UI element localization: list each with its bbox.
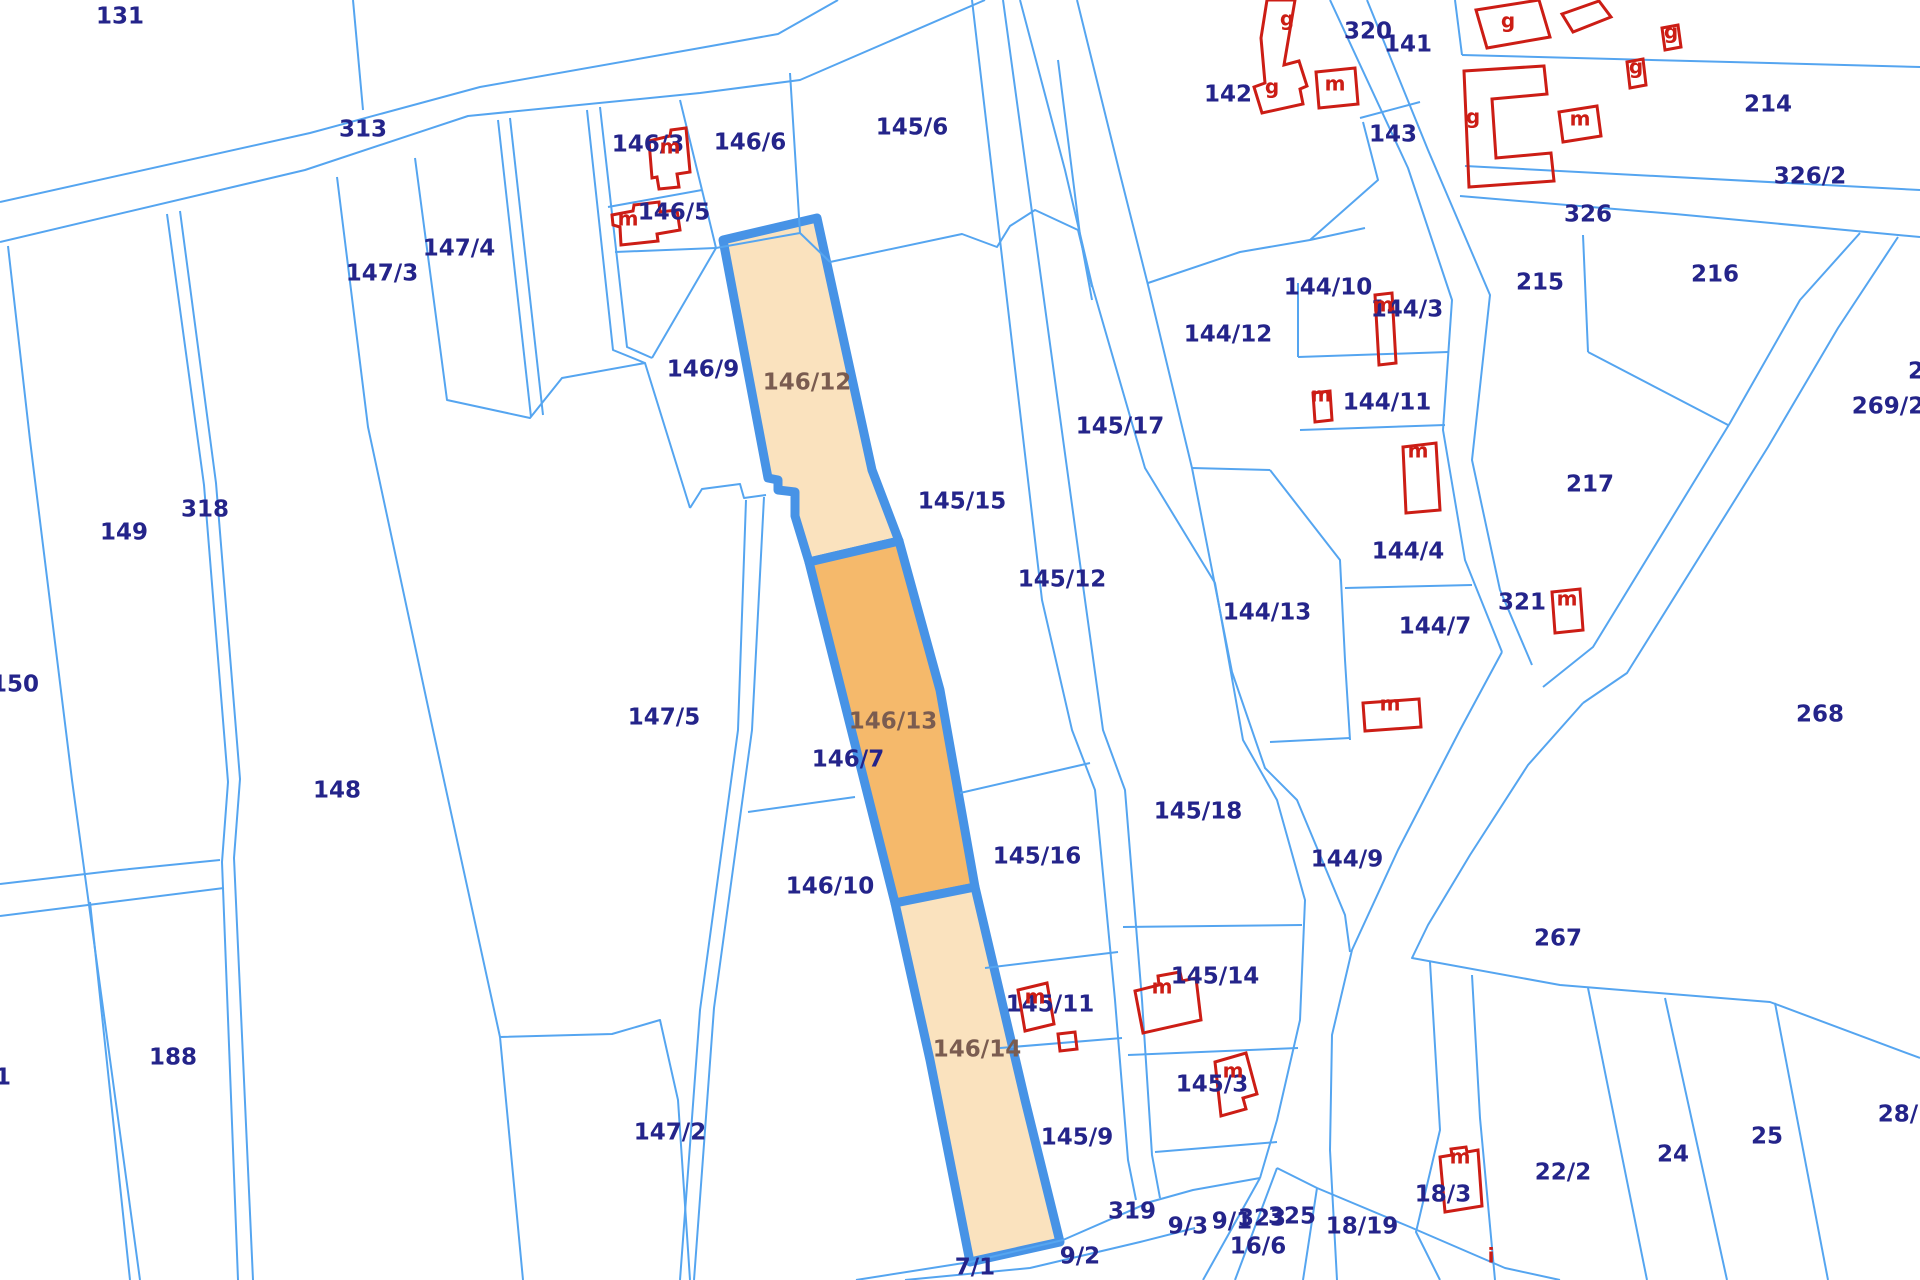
parcel-label-142: 142 [1204, 82, 1252, 108]
parcel-boundary-line [180, 211, 253, 1280]
parcel-boundary-line [0, 888, 224, 916]
parcel-label-144/7: 144/7 [1399, 614, 1471, 640]
parcel-boundary-line [694, 497, 764, 1280]
parcel-boundary-line [1303, 1188, 1317, 1280]
parcel-label-146/13: 146/13 [849, 709, 937, 735]
parcel-label-146/6: 146/6 [714, 130, 786, 156]
building-letter-g: g [1629, 55, 1643, 79]
parcel-label-131: 131 [96, 4, 144, 30]
building-letter-m: m [1311, 383, 1332, 407]
parcel-label-144/4: 144/4 [1372, 539, 1444, 565]
parcel-label-28/1: 28/1 [1878, 1102, 1920, 1128]
parcel-boundary-line [1462, 55, 1920, 67]
parcel-boundary-line [353, 0, 363, 110]
building-letter-m: m [1570, 107, 1591, 131]
parcel-label-146/10: 146/10 [786, 874, 874, 900]
building-letter-g: g [1466, 105, 1480, 129]
parcel-label-143: 143 [1369, 122, 1417, 148]
parcel-label-145/6: 145/6 [876, 115, 948, 141]
parcel-boundary-line [1310, 122, 1378, 240]
parcel-boundary-line [830, 210, 1092, 287]
parcel-boundary-line [1588, 352, 1728, 425]
highlighted-parcel-146/14[interactable] [895, 887, 1060, 1262]
parcel-label-144/10: 144/10 [1284, 275, 1372, 301]
parcel-label-18/19: 18/19 [1326, 1214, 1398, 1240]
parcel-label-217: 217 [1566, 472, 1614, 498]
building-letter-m: m [1408, 439, 1429, 463]
parcel-boundary-line [1123, 925, 1302, 927]
building-letter-g: g [1265, 75, 1279, 99]
parcel-boundary-line [690, 484, 766, 508]
parcel-label-145/12: 145/12 [1018, 567, 1106, 593]
parcel-label-146/9: 146/9 [667, 357, 739, 383]
parcel-label-216: 216 [1691, 262, 1739, 288]
building-letter-m: m [1373, 293, 1394, 317]
parcel-label-269/2: 269/2 [1852, 394, 1920, 420]
parcel-boundary-line [1583, 235, 1588, 352]
parcel-label-145/18: 145/18 [1154, 799, 1242, 825]
parcel-label-214: 214 [1744, 92, 1792, 118]
building-letter-m: m [660, 135, 681, 159]
parcel-boundary-line [8, 246, 140, 1280]
parcel-label-318: 318 [181, 497, 229, 523]
parcel-boundary-line [1588, 988, 1647, 1280]
parcel-label-16/6: 16/6 [1230, 1234, 1286, 1260]
parcel-boundary-line [1465, 166, 1920, 190]
parcel-label-145/11: 145/11 [1006, 992, 1094, 1018]
parcel-label-144/9: 144/9 [1311, 847, 1383, 873]
building-letter-i: i [1488, 1244, 1495, 1268]
parcel-boundary-line [1472, 975, 1495, 1280]
parcel-boundary-line [960, 763, 1090, 793]
parcel-label-313: 313 [339, 117, 387, 143]
parcel-label-22/2: 22/2 [1535, 1160, 1591, 1186]
parcel-label-145/14: 145/14 [1171, 964, 1259, 990]
parcel-label-319: 319 [1108, 1199, 1156, 1225]
parcel-label-147/4: 147/4 [423, 236, 495, 262]
parcel-label-149: 149 [100, 520, 148, 546]
building-letter-g: g [1280, 7, 1294, 31]
parcel-boundary-line [0, 0, 838, 202]
parcel-boundary-line [500, 1020, 690, 1280]
parcel-label-267: 267 [1534, 926, 1582, 952]
parcel-label-321: 321 [1498, 590, 1546, 616]
parcel-boundary-line [680, 500, 746, 1280]
parcel-boundary-line [652, 248, 716, 358]
parcel-label-18/3: 18/3 [1415, 1182, 1471, 1208]
parcel-label-9/3: 9/3 [1168, 1214, 1208, 1240]
building-letter-m: m [1380, 692, 1401, 716]
parcel-label-144/12: 144/12 [1184, 322, 1272, 348]
building-letter-m: m [1325, 72, 1346, 96]
parcel-label-326: 326 [1564, 202, 1612, 228]
parcel-label-1: 1 [0, 1065, 11, 1091]
parcel-boundary-line [1345, 585, 1472, 588]
building-letter-m: m [1450, 1145, 1471, 1169]
parcel-boundary-line [985, 952, 1118, 968]
parcel-boundary-line [1665, 998, 1727, 1280]
building-letter-m: m [1557, 587, 1578, 611]
parcel-boundary-line [1128, 1048, 1298, 1055]
building-letter-m: m [1025, 985, 1046, 1009]
parcel-label-147/5: 147/5 [628, 705, 700, 731]
parcel-boundary-line [790, 73, 800, 233]
parcel-boundary-line [1298, 352, 1448, 357]
parcel-label-188: 188 [149, 1045, 197, 1071]
parcel-boundary-line [1300, 425, 1445, 430]
parcel-boundary-line [1003, 0, 1160, 1198]
parcel-label-215: 215 [1516, 270, 1564, 296]
parcel-boundary-line [748, 797, 855, 812]
parcel-boundary-line [1416, 962, 1440, 1280]
parcel-label-144/13: 144/13 [1223, 600, 1311, 626]
parcel-label-145/15: 145/15 [918, 489, 1006, 515]
parcel-label-268: 268 [1796, 702, 1844, 728]
building-letter-m: m [618, 207, 639, 231]
parcel-label-25: 25 [1751, 1124, 1783, 1150]
parcel-label-146/5: 146/5 [638, 200, 710, 226]
cadastral-map-canvas[interactable]: 131313146/3146/6145/6146/5147/4147/31423… [0, 0, 1920, 1280]
parcel-boundary-line [1270, 738, 1350, 742]
building-letter-m: m [1223, 1059, 1244, 1083]
parcel-label-325: 325 [1268, 1204, 1316, 1230]
parcel-label-148: 148 [313, 778, 361, 804]
parcel-label-150: 150 [0, 672, 39, 698]
building-letter-g: g [1664, 20, 1678, 44]
parcel-label-144/11: 144/11 [1343, 390, 1431, 416]
parcel-boundary-line [1543, 233, 1860, 687]
parcel-label-145/16: 145/16 [993, 844, 1081, 870]
parcel-label-146/14: 146/14 [933, 1037, 1021, 1063]
parcel-boundary-line [337, 177, 523, 1280]
parcel-boundary-line [0, 0, 985, 242]
parcel-label-9/2: 9/2 [1060, 1244, 1100, 1270]
cadastral-map-viewport[interactable]: 131313146/3146/6145/6146/5147/4147/31423… [0, 0, 1920, 1280]
parcel-label-7/1: 7/1 [955, 1255, 995, 1280]
parcel-label-24: 24 [1657, 1142, 1689, 1168]
parcel-boundary-line [1455, 0, 1462, 55]
building-letter-g: g [1501, 9, 1515, 33]
parcel-boundary-line [1155, 1142, 1277, 1152]
parcel-label-2: 2 [1908, 359, 1920, 385]
parcel-label-145/17: 145/17 [1076, 414, 1164, 440]
parcel-label-147/3: 147/3 [346, 261, 418, 287]
parcel-label-146/12: 146/12 [763, 370, 851, 396]
building-outline [1562, 1, 1611, 32]
parcel-label-326/2: 326/2 [1774, 164, 1846, 190]
parcel-label-146/7: 146/7 [812, 747, 884, 773]
parcel-label-145/9: 145/9 [1041, 1125, 1113, 1151]
parcel-boundary-line [1192, 468, 1270, 470]
parcel-boundary-line [615, 248, 716, 252]
parcel-boundary-line [0, 860, 220, 884]
parcel-label-141: 141 [1384, 32, 1432, 58]
parcel-boundary-line [1583, 237, 1898, 703]
parcel-boundary-line [90, 902, 130, 1280]
parcel-label-147/2: 147/2 [634, 1120, 706, 1146]
parcel-boundary-line [1460, 196, 1920, 237]
building-letter-m: m [1152, 975, 1173, 999]
